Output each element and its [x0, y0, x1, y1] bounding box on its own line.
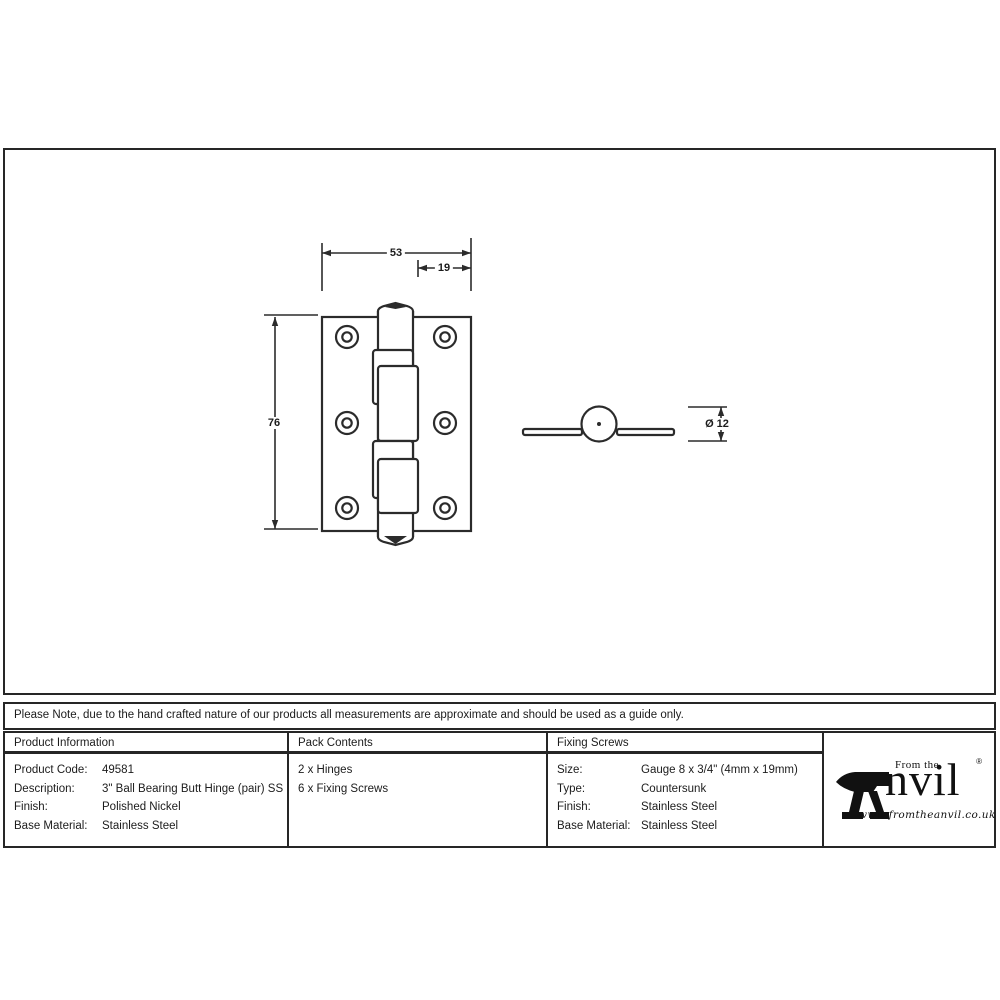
fixing-screws-column: Fixing Screws Size: Gauge 8 x 3/4" (4mm …	[548, 733, 824, 846]
spec-label: Finish:	[14, 798, 102, 817]
spec-label: Description:	[14, 780, 102, 799]
dim-label-width: 53	[387, 247, 405, 259]
brand-cell: From the nvil ® www.fromtheanvil.co.uk	[824, 733, 994, 846]
measurement-note: Please Note, due to the hand crafted nat…	[3, 702, 996, 730]
spec-label: Size:	[557, 761, 641, 780]
table-row: Product Code: 49581	[14, 761, 281, 780]
list-item: 2 x Hinges	[298, 761, 540, 780]
spec-table: Product Information Product Code: 49581 …	[3, 731, 996, 848]
table-row: Finish: Polished Nickel	[14, 798, 281, 817]
table-row: Base Material: Stainless Steel	[14, 817, 281, 836]
table-row: Type: Countersunk	[557, 780, 816, 799]
column-header-pack-contents: Pack Contents	[289, 733, 546, 754]
product-information-body: Product Code: 49581 Description: 3" Ball…	[5, 754, 287, 835]
spec-label: Base Material:	[14, 817, 102, 836]
table-row: Finish: Stainless Steel	[557, 798, 816, 817]
anvil-logo: From the nvil ® www.fromtheanvil.co.uk	[834, 753, 984, 827]
registered-trademark: ®	[976, 757, 982, 766]
measurement-note-text: Please Note, due to the hand crafted nat…	[14, 709, 684, 721]
dimension-lines	[264, 238, 727, 529]
spec-value: Countersunk	[641, 780, 706, 799]
pack-contents-body: 2 x Hinges 6 x Fixing Screws	[289, 754, 546, 798]
hinge-knuckles	[373, 350, 418, 513]
spec-label: Finish:	[557, 798, 641, 817]
spec-sheet-page: 53 19 76 Ø 12 Please Note, due to the ha…	[0, 0, 1000, 1000]
hinge-side-view	[523, 407, 674, 442]
spec-label: Base Material:	[557, 817, 641, 836]
spec-value: Polished Nickel	[102, 798, 181, 817]
spec-value: Stainless Steel	[641, 817, 717, 836]
brand-website: www.fromtheanvil.co.uk	[858, 809, 996, 821]
spec-label: Product Code:	[14, 761, 102, 780]
pack-contents-column: Pack Contents 2 x Hinges 6 x Fixing Scre…	[289, 733, 548, 846]
dim-label-leaf: 19	[435, 262, 453, 274]
column-header-fixing-screws: Fixing Screws	[548, 733, 822, 754]
spec-value: Gauge 8 x 3/4" (4mm x 19mm)	[641, 761, 798, 780]
spec-value: 49581	[102, 761, 134, 780]
table-row: Base Material: Stainless Steel	[557, 817, 816, 836]
dim-label-height: 76	[265, 417, 283, 429]
dim-label-diameter: Ø 12	[702, 418, 732, 430]
table-row: Description: 3" Ball Bearing Butt Hinge …	[14, 780, 281, 799]
product-information-column: Product Information Product Code: 49581 …	[5, 733, 289, 846]
spec-value: Stainless Steel	[641, 798, 717, 817]
technical-drawing	[0, 0, 1000, 1000]
brand-name: nvil	[885, 750, 961, 810]
dimension-arrows	[272, 250, 724, 529]
spec-value: Stainless Steel	[102, 817, 178, 836]
spec-label: Type:	[557, 780, 641, 799]
column-header-product-information: Product Information	[5, 733, 287, 754]
list-item: 6 x Fixing Screws	[298, 780, 540, 799]
spec-value: 3" Ball Bearing Butt Hinge (pair) SS	[102, 780, 283, 799]
table-row: Size: Gauge 8 x 3/4" (4mm x 19mm)	[557, 761, 816, 780]
fixing-screws-body: Size: Gauge 8 x 3/4" (4mm x 19mm) Type: …	[548, 754, 822, 835]
